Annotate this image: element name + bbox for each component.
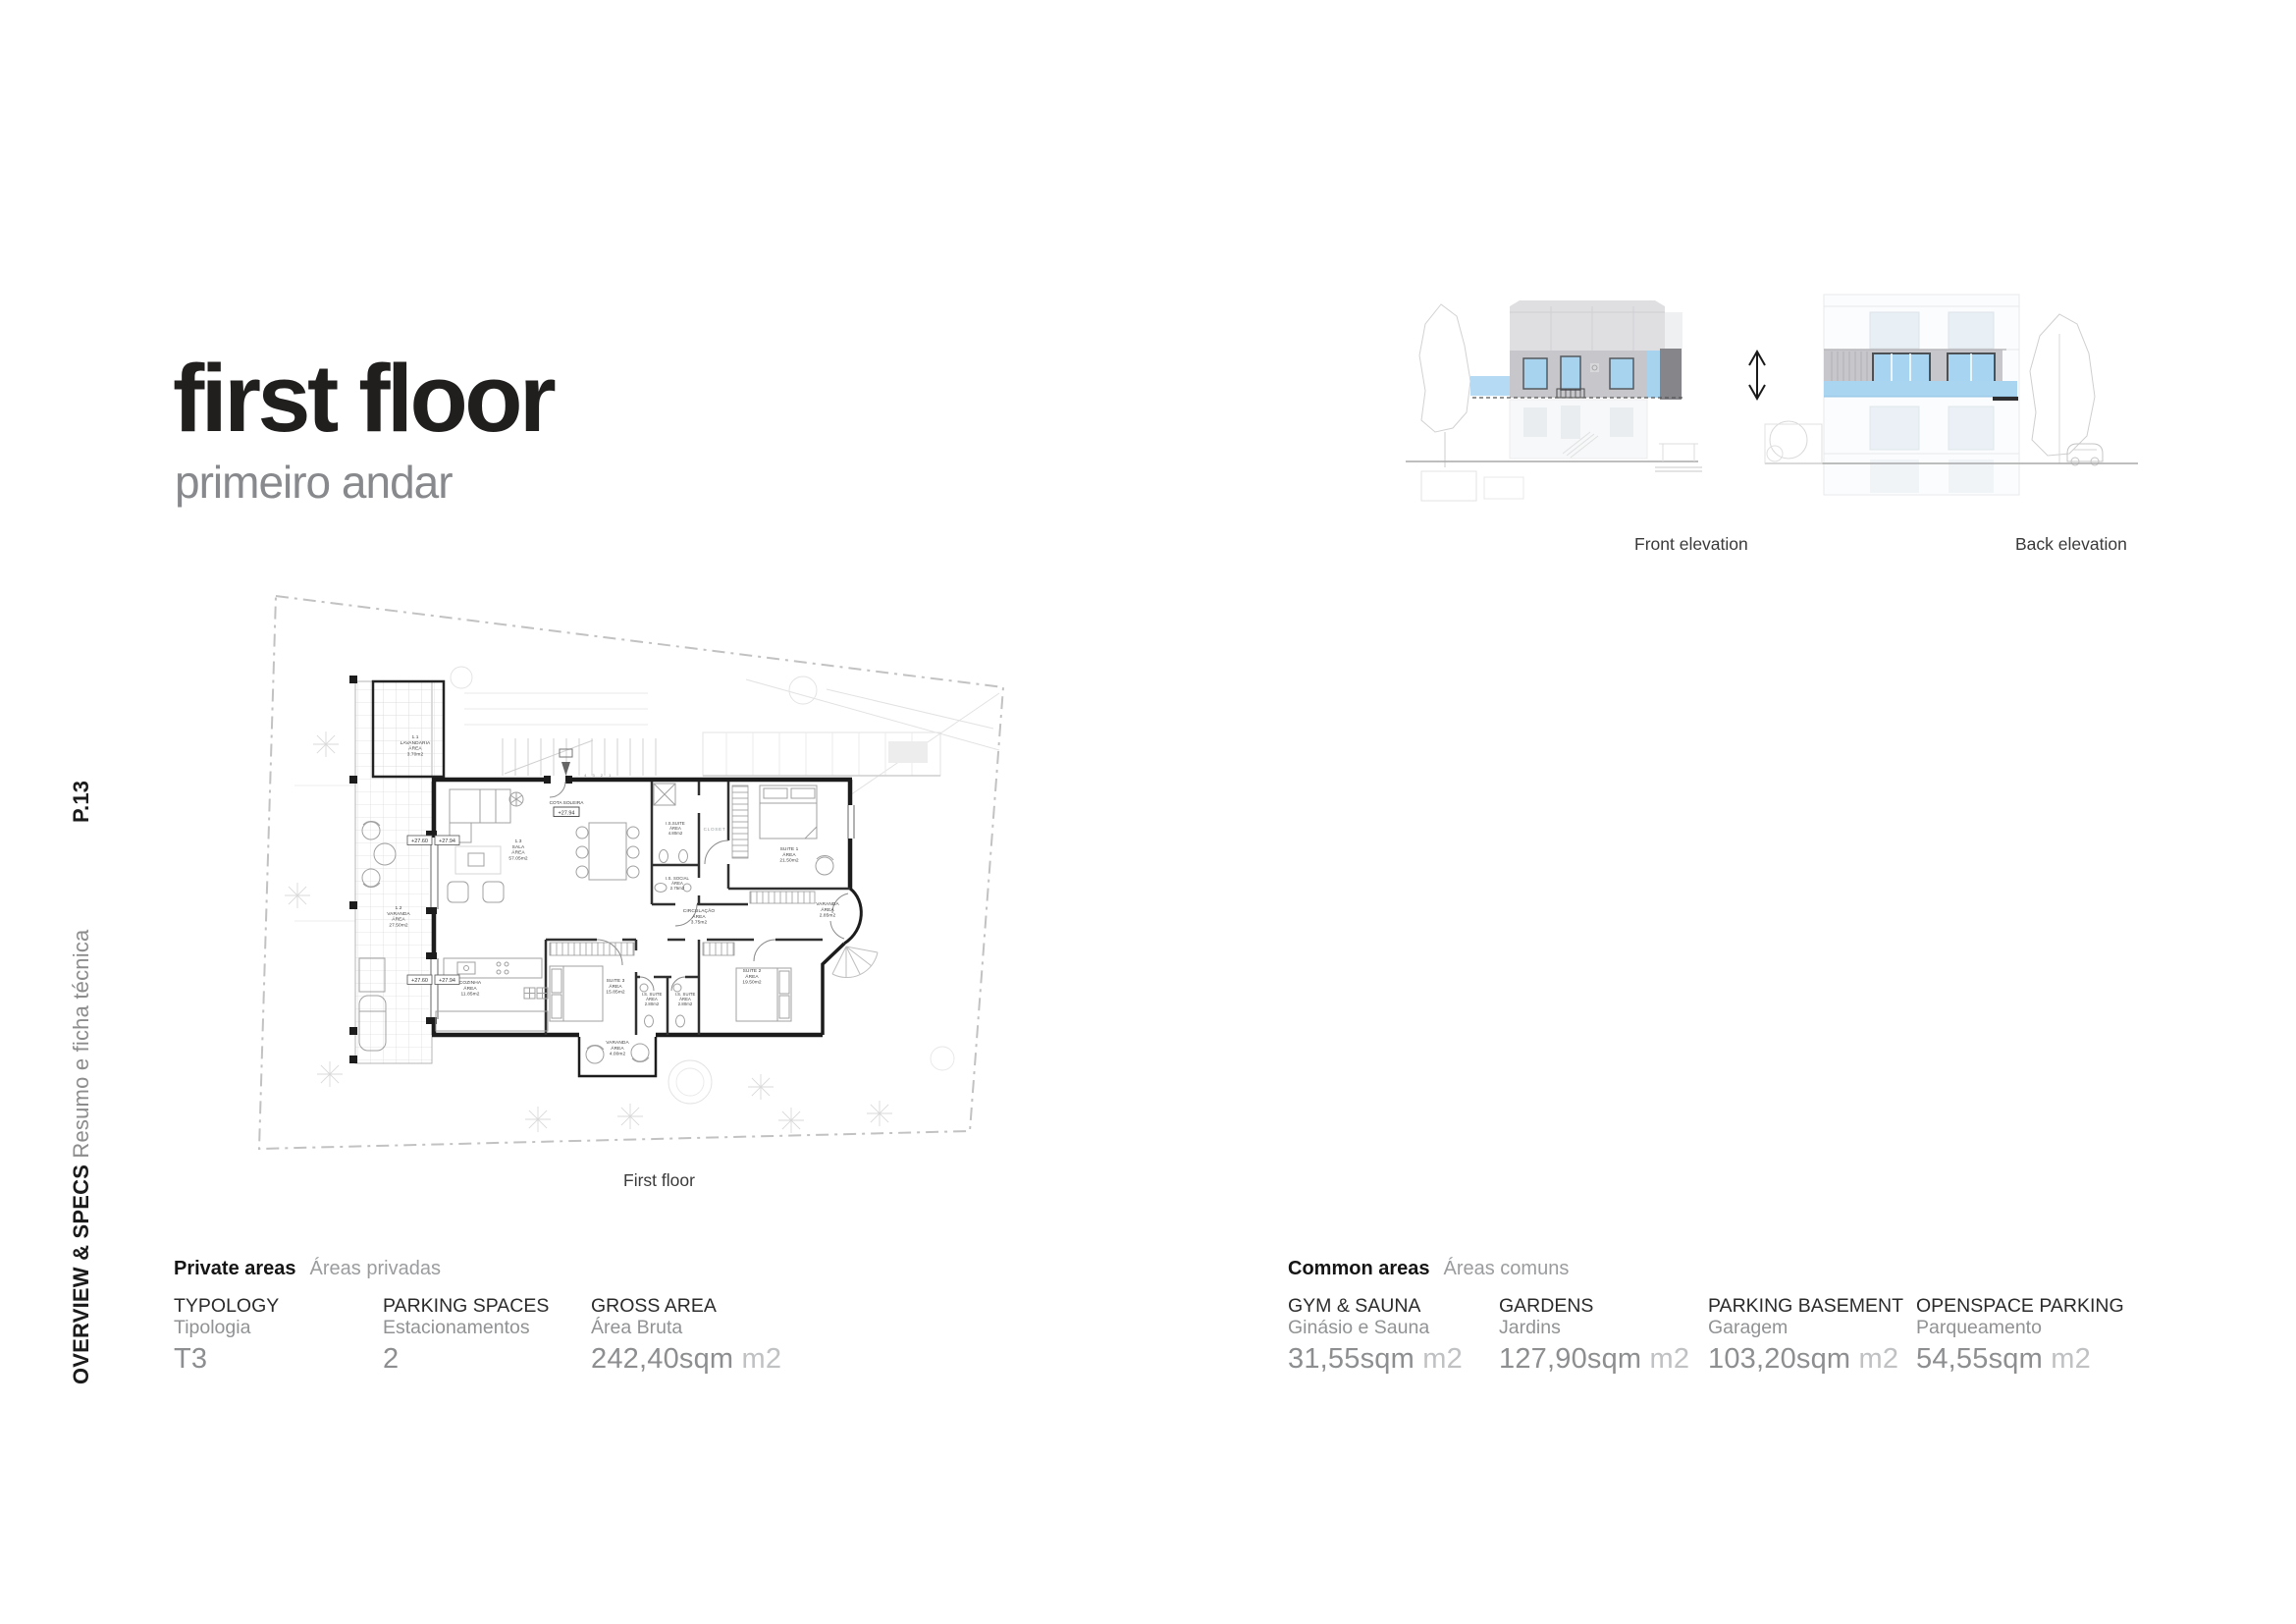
spec-label: OPENSPACE PARKING <box>1916 1295 2124 1317</box>
elevations-drawing <box>1394 285 2150 520</box>
cota-value: +27.94 <box>559 811 575 817</box>
spec-sublabel: Estacionamentos <box>383 1317 549 1339</box>
sidebar-section-bold: OVERVIEW & SPECS <box>69 1164 93 1384</box>
front-elevation-label: Front elevation <box>1634 534 1748 555</box>
private-areas-subtitle: Áreas privadas <box>310 1258 441 1279</box>
room-label: CLOSET <box>704 827 726 833</box>
spec-sublabel: Jardins <box>1499 1317 1689 1339</box>
common-areas-subtitle: Áreas comuns <box>1444 1258 1570 1279</box>
spec-value: 127,90sqm m2 <box>1499 1343 1689 1376</box>
spec-value: 54,55sqm m2 <box>1916 1343 2124 1376</box>
level-marker: +27.60 <box>411 978 428 984</box>
sidebar-section-label: OVERVIEW & SPECS Resumo e ficha técnica <box>69 930 94 1384</box>
spec-column: OPENSPACE PARKINGParqueamento54,55sqm m2 <box>1916 1295 2124 1376</box>
plan-caption: First floor <box>623 1170 695 1191</box>
level-marker: +27.94 <box>439 978 455 984</box>
spec-label: TYPOLOGY <box>174 1295 279 1317</box>
spec-value: 103,20sqm m2 <box>1708 1343 1903 1376</box>
spec-sublabel: Tipologia <box>174 1317 279 1339</box>
spec-column: GARDENSJardins127,90sqm m2 <box>1499 1295 1689 1376</box>
spec-label: GYM & SAUNA <box>1288 1295 1463 1317</box>
spec-column: PARKING BASEMENTGaragem103,20sqm m2 <box>1708 1295 1903 1376</box>
common-areas-title: Common areas <box>1288 1258 1430 1279</box>
spec-label: PARKING SPACES <box>383 1295 549 1317</box>
spec-value: 31,55sqm m2 <box>1288 1343 1463 1376</box>
level-marker: +27.60 <box>411 839 428 844</box>
back-elevation-label: Back elevation <box>2015 534 2127 555</box>
private-areas-header: Private areasÁreas privadas <box>174 1258 441 1280</box>
spec-sublabel: Garagem <box>1708 1317 1903 1339</box>
common-areas-header: Common areasÁreas comuns <box>1288 1258 1569 1280</box>
spec-value: 242,40sqm m2 <box>591 1343 781 1376</box>
spec-column: GYM & SAUNAGinásio e Sauna31,55sqm m2 <box>1288 1295 1463 1376</box>
floor-plan-drawing: 1.1LAVANDARIAÁREA3.70m21.2VARANDAÁREA27.… <box>236 574 1033 1211</box>
vertical-double-arrow-icon <box>1749 352 1765 399</box>
sidebar-section-translation: Resumo e ficha técnica <box>69 930 93 1159</box>
spec-column: TYPOLOGYTipologiaT3 <box>174 1295 279 1376</box>
spec-label: PARKING BASEMENT <box>1708 1295 1903 1317</box>
cota-label: COTA SOLEIRA <box>550 800 585 806</box>
staircase <box>503 738 656 776</box>
private-areas-title: Private areas <box>174 1258 296 1279</box>
spec-value: T3 <box>174 1343 279 1376</box>
page-number: P.13 <box>69 781 94 823</box>
spec-label: GROSS AREA <box>591 1295 781 1317</box>
spec-column: GROSS AREAÁrea Bruta242,40sqm m2 <box>591 1295 781 1376</box>
spec-sublabel: Parqueamento <box>1916 1317 2124 1339</box>
front-elevation <box>1406 300 1702 501</box>
back-elevation <box>1765 295 2138 495</box>
faint-structures <box>464 693 940 776</box>
spec-label: GARDENS <box>1499 1295 1689 1317</box>
level-marker: +27.94 <box>439 839 455 844</box>
page: first floor primeiro andar P.13 OVERVIEW… <box>0 0 2296 1624</box>
spec-sublabel: Área Bruta <box>591 1317 781 1339</box>
page-subtitle: primeiro andar <box>175 456 453 509</box>
spec-value: 2 <box>383 1343 549 1376</box>
page-title: first floor <box>173 355 553 441</box>
spec-sublabel: Ginásio e Sauna <box>1288 1317 1463 1339</box>
spec-column: PARKING SPACESEstacionamentos2 <box>383 1295 549 1376</box>
stair-numbers: 4 3 2 1 <box>584 773 614 778</box>
